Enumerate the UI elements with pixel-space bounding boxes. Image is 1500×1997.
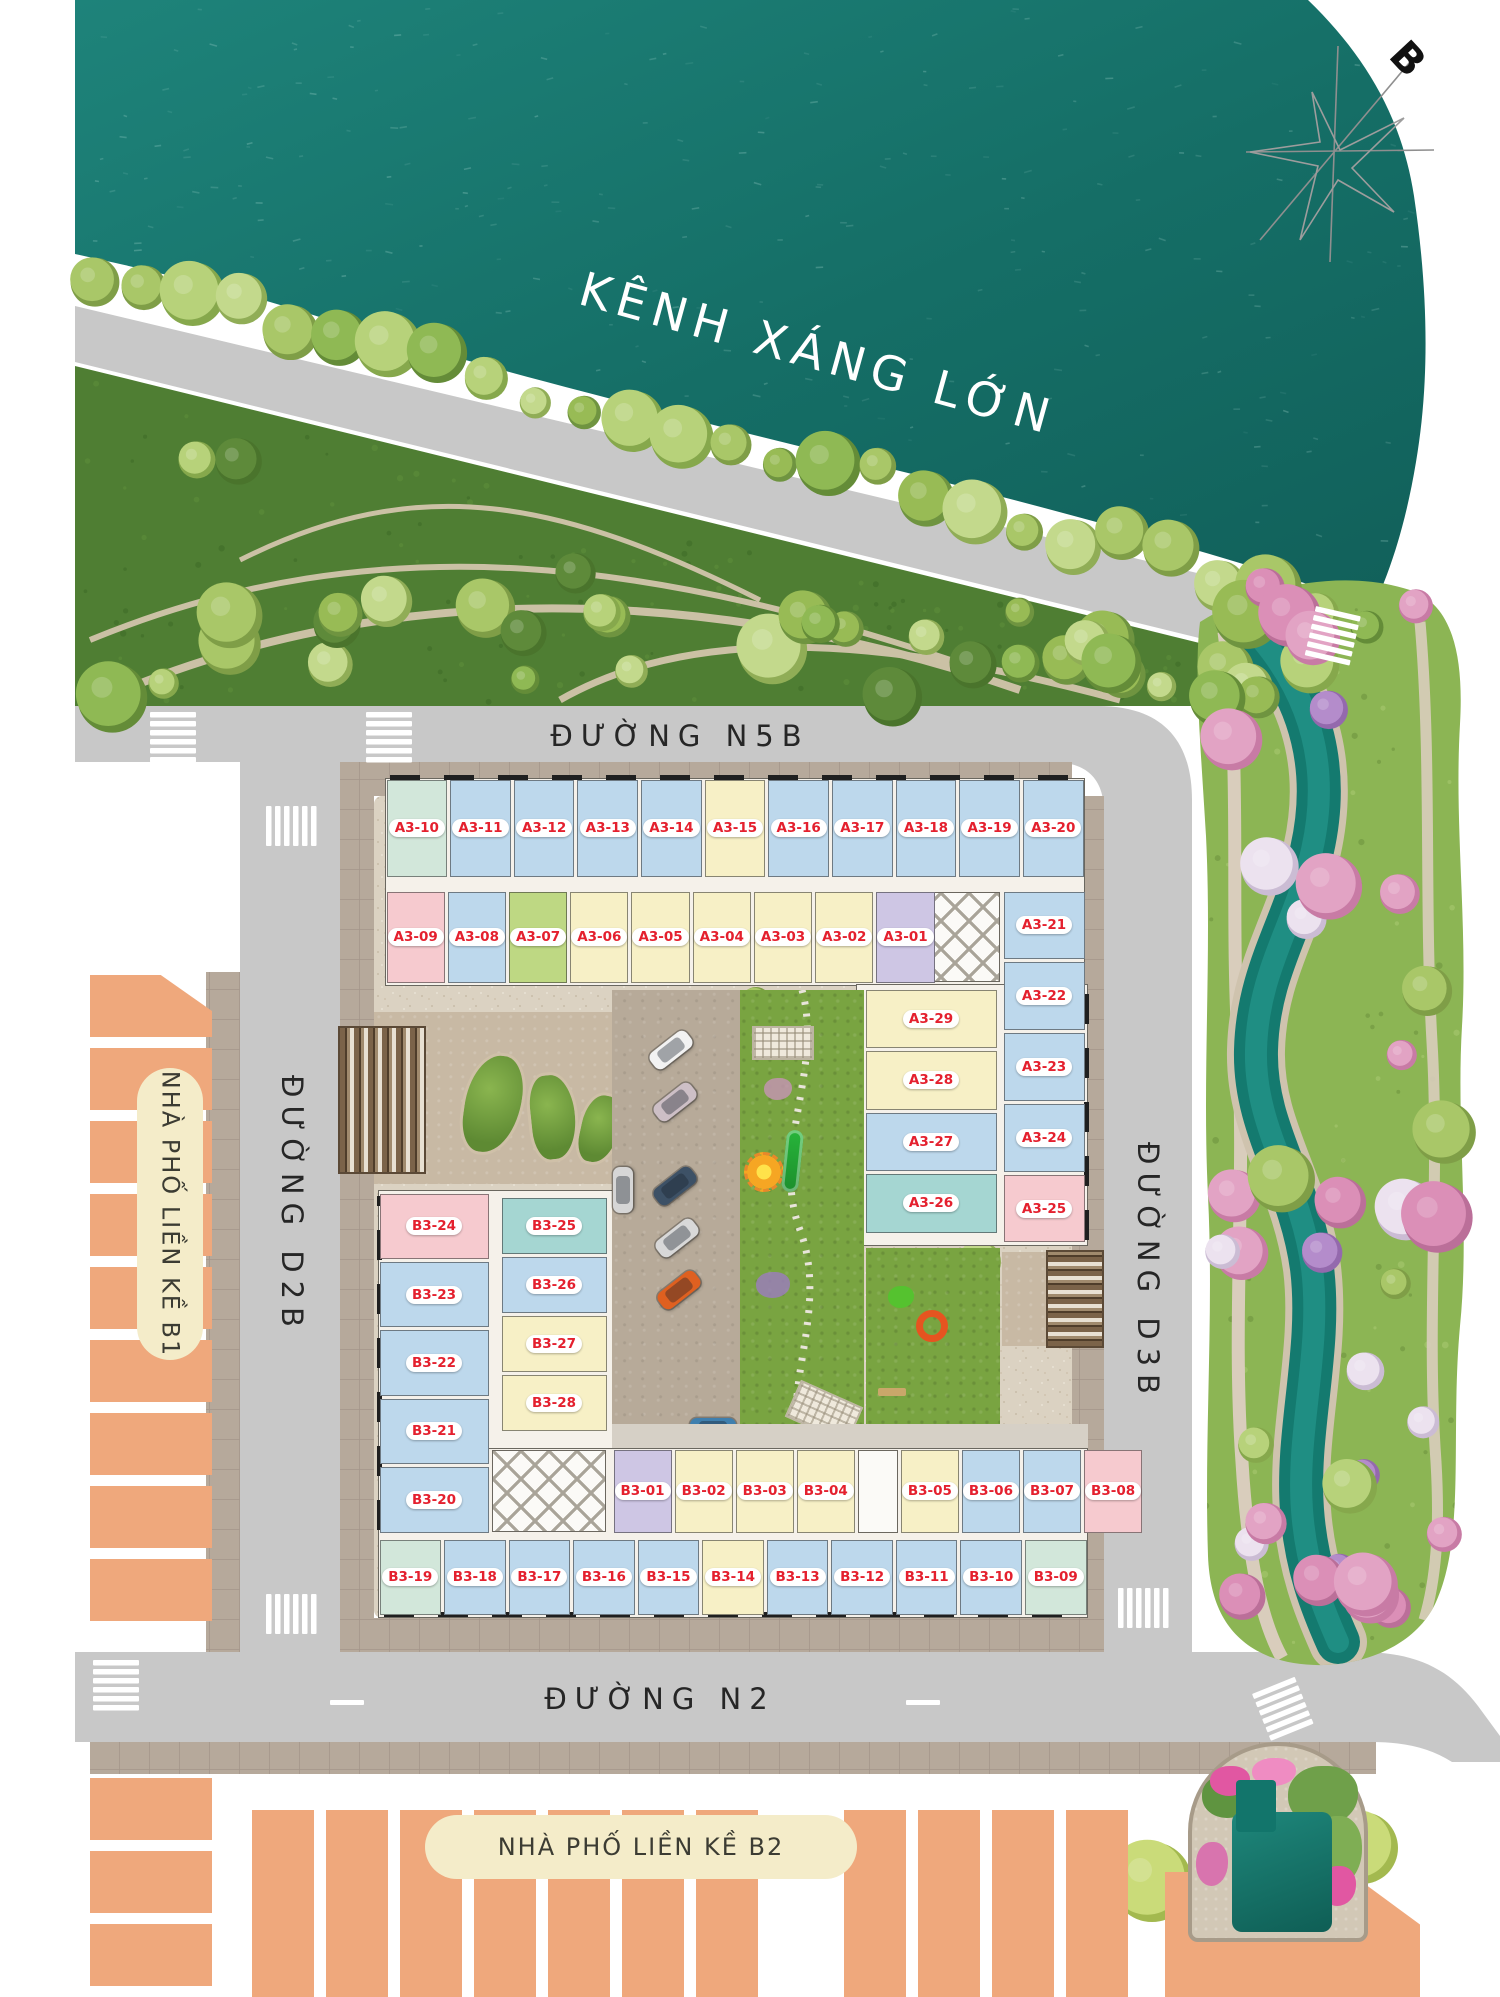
unit-label: A3-17 <box>834 819 890 837</box>
unit-label: B3-17 <box>511 1568 567 1586</box>
unit-A3-10[interactable]: A3-10 <box>387 780 448 877</box>
unit-A3-29[interactable]: A3-29 <box>866 990 997 1049</box>
elevator-core-south <box>492 1450 606 1532</box>
unit-label: B3-24 <box>406 1217 462 1235</box>
townhouse-lot[interactable] <box>90 1851 212 1913</box>
unit-label: B3-20 <box>406 1491 462 1509</box>
entry-gate-west <box>338 1026 426 1174</box>
unit-label: A3-23 <box>1016 1058 1072 1076</box>
unit-label: B3-04 <box>798 1482 854 1500</box>
wing-north-inner-row: A3-09A3-08A3-07A3-06A3-05A3-04A3-03A3-02… <box>385 890 884 984</box>
unit-A3-24[interactable]: A3-24 <box>1004 1104 1085 1172</box>
unit-label: A3-01 <box>877 928 933 946</box>
area-pill-b2: NHÀ PHỐ LIỀN KỀ B2 <box>425 1815 857 1879</box>
unit-A3-09[interactable]: A3-09 <box>387 892 445 983</box>
unit-label: A3-10 <box>389 819 445 837</box>
unit-B3-09[interactable]: B3-09 <box>1025 1540 1087 1615</box>
unit-B3-06[interactable]: B3-06 <box>962 1450 1020 1533</box>
unit-label: B3-12 <box>834 1568 890 1586</box>
unit-B3-13[interactable]: B3-13 <box>767 1540 829 1615</box>
unit-label: A3-11 <box>452 819 508 837</box>
wing-south-inner-row: B3-01B3-02B3-03B3-04B3-05B3-06B3-07B3-08 <box>612 1448 1088 1534</box>
unit-B3-15[interactable]: B3-15 <box>638 1540 700 1615</box>
townhouse-lot[interactable] <box>918 1810 980 1997</box>
playground-sun <box>744 1152 784 1192</box>
wing-east-inner-column: A3-29A3-28A3-27A3-26 <box>864 988 998 1234</box>
unit-B3-23[interactable]: B3-23 <box>380 1262 489 1327</box>
unit-B3-03[interactable]: B3-03 <box>736 1450 794 1533</box>
unit-label: B3-19 <box>382 1568 438 1586</box>
unit-A3-18[interactable]: A3-18 <box>896 780 957 877</box>
unit-A3-20[interactable]: A3-20 <box>1023 780 1084 877</box>
unit-A3-08[interactable]: A3-08 <box>448 892 506 983</box>
unit-B3-28[interactable]: B3-28 <box>502 1375 607 1431</box>
unit-label: B3-15 <box>640 1568 696 1586</box>
unit-A3-03[interactable]: A3-03 <box>754 892 812 983</box>
unit-B3-24[interactable]: B3-24 <box>380 1194 489 1259</box>
unit-B3-21[interactable]: B3-21 <box>380 1399 489 1464</box>
pergola <box>752 1026 814 1060</box>
unit-label: A3-15 <box>707 819 763 837</box>
unit-label: B3-05 <box>902 1482 958 1500</box>
road-label-d2b: ĐƯỜNG D2B <box>275 1075 309 1335</box>
unit-label: B3-13 <box>770 1568 826 1586</box>
unit-A3-23[interactable]: A3-23 <box>1004 1033 1085 1101</box>
unit-label: A3-04 <box>694 928 750 946</box>
unit-label: B3-18 <box>447 1568 503 1586</box>
unit-A3-07[interactable]: A3-07 <box>509 892 567 983</box>
unit-label: B3-09 <box>1028 1568 1084 1586</box>
wing-south-outer-row: B3-19B3-18B3-17B3-16B3-15B3-14B3-13B3-12… <box>378 1538 1088 1616</box>
unit-label: A3-20 <box>1025 819 1081 837</box>
unit-label: B3-28 <box>526 1394 582 1412</box>
unit-label: B3-11 <box>899 1568 955 1586</box>
townhouse-lot[interactable] <box>90 1924 212 1986</box>
unit-label: B3-10 <box>963 1568 1019 1586</box>
unit-A3-06[interactable]: A3-06 <box>570 892 628 983</box>
unit-label: A3-27 <box>903 1133 959 1151</box>
unit-label: B3-03 <box>737 1482 793 1500</box>
area-pill-b1: NHÀ PHỐ LIỀN KỀ B1 <box>137 1068 203 1360</box>
site-plan-scene: KÊNH XÁNG LỚN ĐƯỜNG N5B ĐƯỜNG D2B ĐƯỜNG … <box>0 0 1500 1997</box>
unit-label: B3-08 <box>1085 1482 1141 1500</box>
unit-B3-14[interactable]: B3-14 <box>702 1540 764 1615</box>
car <box>613 1167 633 1213</box>
unit-label: A3-29 <box>903 1010 959 1028</box>
pool-water-small <box>1236 1780 1276 1832</box>
unit-label: A3-26 <box>903 1194 959 1212</box>
unit-label: A3-03 <box>755 928 811 946</box>
unit-label: B3-06 <box>963 1482 1019 1500</box>
unit-A3-19[interactable]: A3-19 <box>959 780 1020 877</box>
unit-B3-25[interactable]: B3-25 <box>502 1198 607 1254</box>
unit-label: A3-16 <box>771 819 827 837</box>
unit-label: B3-16 <box>576 1568 632 1586</box>
flowers <box>1196 1842 1228 1886</box>
unit-B3-12[interactable]: B3-12 <box>831 1540 893 1615</box>
unit-label: A3-28 <box>903 1071 959 1089</box>
unit-B3-08[interactable]: B3-08 <box>1084 1450 1142 1533</box>
unit-B3-16[interactable]: B3-16 <box>573 1540 635 1615</box>
unit-B3-11[interactable]: B3-11 <box>896 1540 958 1615</box>
pool-feature <box>1188 1742 1368 1942</box>
townhouse-lot[interactable] <box>90 1486 212 1548</box>
bench <box>878 1388 906 1396</box>
unit-label: A3-25 <box>1016 1200 1072 1218</box>
unit-label: B3-02 <box>676 1482 732 1500</box>
unit-label: B3-22 <box>406 1354 462 1372</box>
unit-A3-14[interactable]: A3-14 <box>641 780 702 877</box>
unit-B3-10[interactable]: B3-10 <box>960 1540 1022 1615</box>
unit-A3-11[interactable]: A3-11 <box>450 780 511 877</box>
unit-label: A3-22 <box>1016 987 1072 1005</box>
unit-A3-17[interactable]: A3-17 <box>832 780 893 877</box>
unit-A3-12[interactable]: A3-12 <box>514 780 575 877</box>
unit-B3-20[interactable]: B3-20 <box>380 1467 489 1532</box>
road-label-n5b: ĐƯỜNG N5B <box>550 719 809 753</box>
unit-label: B3-26 <box>526 1276 582 1294</box>
townhouse-lot[interactable] <box>90 1413 212 1475</box>
unit-A3-13[interactable]: A3-13 <box>577 780 638 877</box>
townhouse-lot[interactable] <box>90 1778 212 1840</box>
unit-label: A3-14 <box>643 819 699 837</box>
unit-label: A3-09 <box>388 928 444 946</box>
unit-B3-01[interactable]: B3-01 <box>614 1450 672 1533</box>
unit-A3-04[interactable]: A3-04 <box>693 892 751 983</box>
unit-label: A3-13 <box>580 819 636 837</box>
unit-label: B3-07 <box>1024 1482 1080 1500</box>
unit-B3-17[interactable]: B3-17 <box>509 1540 571 1615</box>
unit-A3-01[interactable]: A3-01 <box>876 892 934 983</box>
unit-B3-26[interactable]: B3-26 <box>502 1257 607 1313</box>
unit-A3-16[interactable]: A3-16 <box>768 780 829 877</box>
unit-label: A3-05 <box>632 928 688 946</box>
wing-east-outer-column: A3-21A3-22A3-23A3-24A3-25 <box>1002 890 1086 1244</box>
unit-A3-05[interactable]: A3-05 <box>631 892 689 983</box>
townhouse-lot[interactable] <box>1066 1810 1128 1997</box>
unit-label: A3-24 <box>1016 1129 1072 1147</box>
unit-A3-02[interactable]: A3-02 <box>815 892 873 983</box>
wing-west-outer-column: B3-24B3-23B3-22B3-21B3-20 <box>378 1192 490 1534</box>
unit-label: A3-08 <box>449 928 505 946</box>
unit-B3-27[interactable]: B3-27 <box>502 1316 607 1372</box>
unit-B3-02[interactable]: B3-02 <box>675 1450 733 1533</box>
townhouse-lot[interactable] <box>252 1810 314 1997</box>
unit-label: B3-23 <box>406 1286 462 1304</box>
unit-B3-07[interactable]: B3-07 <box>1023 1450 1081 1533</box>
unit-A3-28[interactable]: A3-28 <box>866 1051 997 1110</box>
unit-label: A3-07 <box>510 928 566 946</box>
unit-label: A3-02 <box>816 928 872 946</box>
unit-label: B3-01 <box>615 1482 671 1500</box>
unit-label: B3-27 <box>526 1335 582 1353</box>
unit-label: A3-06 <box>571 928 627 946</box>
townhouse-lot[interactable] <box>90 1559 212 1621</box>
unit-B3-18[interactable]: B3-18 <box>444 1540 506 1615</box>
unit-label: A3-19 <box>961 819 1017 837</box>
unit-A3-25[interactable]: A3-25 <box>1004 1175 1085 1243</box>
unit-A3-15[interactable]: A3-15 <box>705 780 766 877</box>
road-label-n2: ĐƯỜNG N2 <box>544 1682 775 1716</box>
south-walk <box>612 1424 1088 1448</box>
playground-ring <box>916 1310 948 1342</box>
unit-label: A3-18 <box>898 819 954 837</box>
townhouse-lot[interactable] <box>326 1810 388 1997</box>
road-label-d3b: ĐƯỜNG D3B <box>1131 1142 1165 1402</box>
entry-gate-east <box>1046 1250 1104 1348</box>
unit-B3-22[interactable]: B3-22 <box>380 1330 489 1395</box>
unit-A3-26[interactable]: A3-26 <box>866 1174 997 1233</box>
unit-label: B3-21 <box>406 1422 462 1440</box>
wing-north-outer-row: A3-10A3-11A3-12A3-13A3-14A3-15A3-16A3-17… <box>385 778 1085 878</box>
unit-label: B3-25 <box>526 1217 582 1235</box>
unit-B3-04[interactable]: B3-04 <box>797 1450 855 1533</box>
unit-B3-19[interactable]: B3-19 <box>380 1540 442 1615</box>
unit-label: A3-12 <box>516 819 572 837</box>
unit-label: A3-21 <box>1016 916 1072 934</box>
wing-west-inner-column: B3-25B3-26B3-27B3-28 <box>500 1196 608 1432</box>
townhouse-lot[interactable] <box>992 1810 1054 1997</box>
unit-label: B3-14 <box>705 1568 761 1586</box>
stair-core <box>858 1450 898 1533</box>
unit-A3-27[interactable]: A3-27 <box>866 1113 997 1172</box>
unit-A3-21[interactable]: A3-21 <box>1004 892 1085 960</box>
unit-B3-05[interactable]: B3-05 <box>901 1450 959 1533</box>
unit-A3-22[interactable]: A3-22 <box>1004 962 1085 1030</box>
